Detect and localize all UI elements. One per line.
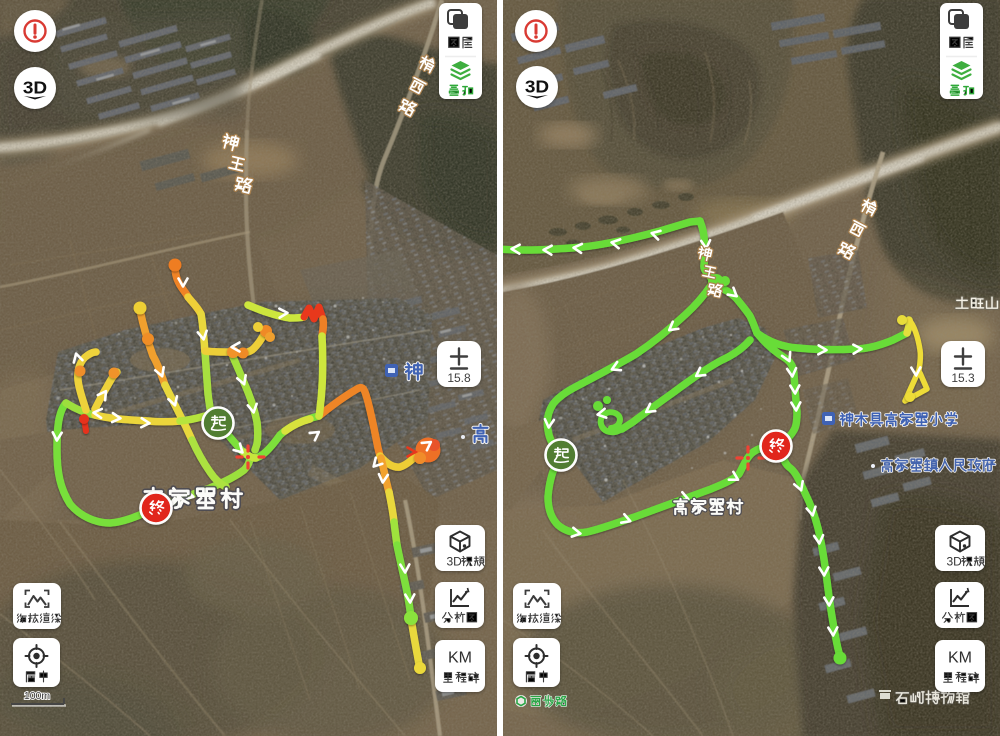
svg-text:15.3: 15.3 xyxy=(951,371,975,385)
svg-text:100m: 100m xyxy=(24,690,51,702)
svg-text:15.8: 15.8 xyxy=(447,371,471,385)
